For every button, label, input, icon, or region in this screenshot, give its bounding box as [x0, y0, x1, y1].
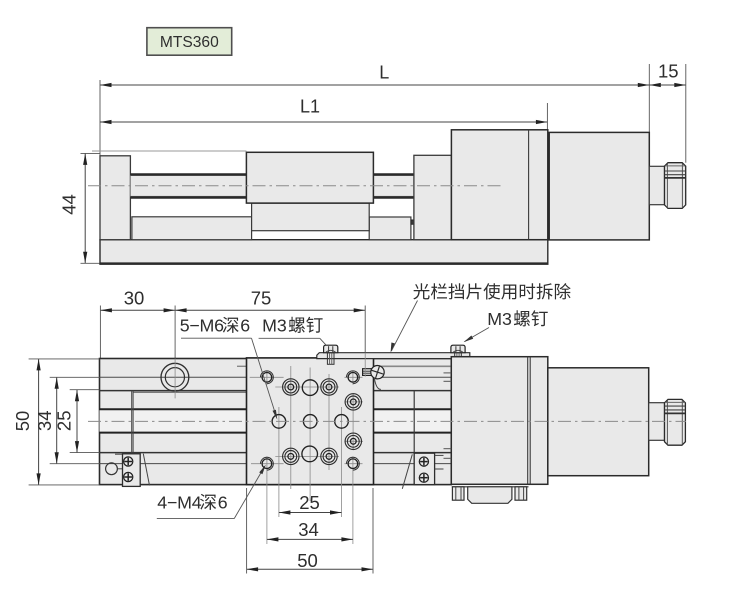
svg-text:30: 30 [124, 288, 145, 309]
svg-text:M3: M3 [262, 316, 287, 336]
svg-text:44: 44 [59, 194, 80, 215]
svg-text:4−M4: 4−M4 [157, 493, 201, 513]
svg-text:MTS360: MTS360 [160, 34, 219, 51]
svg-text:M3: M3 [487, 309, 512, 329]
svg-text:6: 6 [218, 493, 228, 513]
svg-text:75: 75 [251, 288, 272, 309]
svg-text:50: 50 [12, 411, 33, 432]
svg-text:L: L [379, 63, 389, 83]
svg-text:6: 6 [240, 316, 250, 336]
svg-text:25: 25 [53, 411, 74, 432]
svg-text:L1: L1 [300, 97, 320, 117]
svg-text:34: 34 [34, 411, 55, 432]
svg-text:5−M6: 5−M6 [180, 316, 224, 336]
svg-text:15: 15 [658, 61, 679, 82]
svg-text:25: 25 [299, 492, 320, 513]
svg-text:34: 34 [298, 519, 319, 540]
svg-text:50: 50 [297, 550, 318, 571]
